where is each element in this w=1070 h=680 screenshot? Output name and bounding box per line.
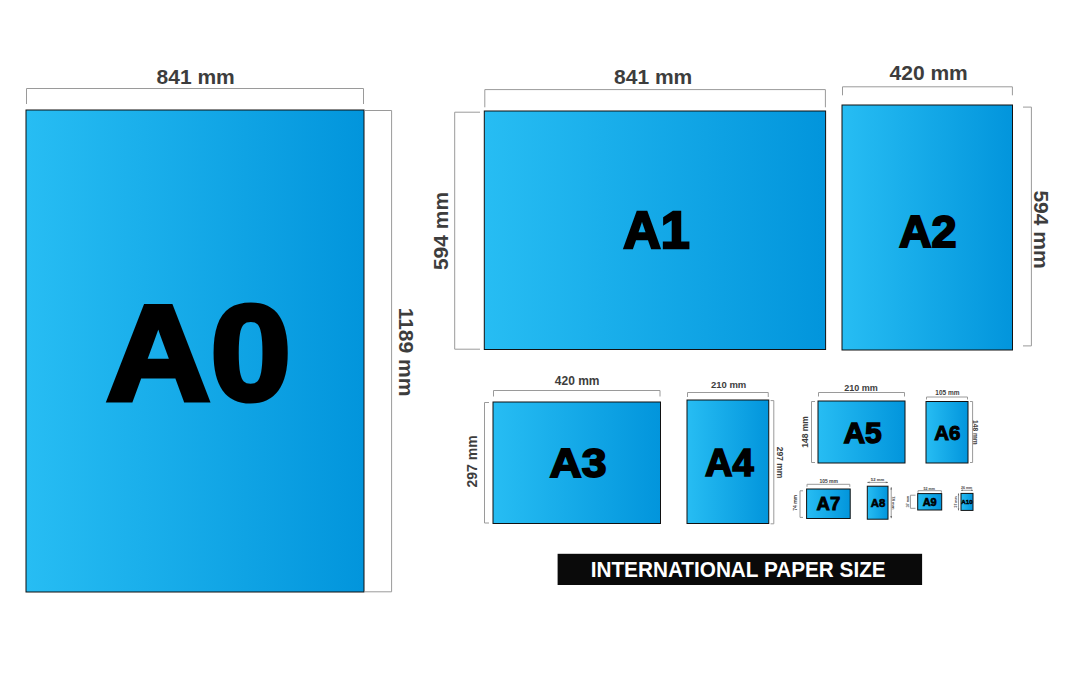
svg-text:A8: A8 xyxy=(871,497,886,509)
svg-text:105 mm: 105 mm xyxy=(819,478,838,484)
svg-text:37 mm: 37 mm xyxy=(954,496,958,507)
svg-text:420 mm: 420 mm xyxy=(555,374,600,388)
svg-text:594 mm: 594 mm xyxy=(1030,190,1053,268)
svg-text:594 mm: 594 mm xyxy=(429,192,452,270)
svg-text:297 mm: 297 mm xyxy=(464,435,480,487)
svg-text:A6: A6 xyxy=(934,421,960,444)
svg-text:52 mm: 52 mm xyxy=(871,477,885,482)
svg-text:148 mm: 148 mm xyxy=(800,416,810,448)
svg-text:INTERNATIONAL PAPER SIZE: INTERNATIONAL PAPER SIZE xyxy=(591,558,886,582)
svg-text:52 mm: 52 mm xyxy=(924,487,935,491)
svg-text:A5: A5 xyxy=(843,416,881,449)
svg-text:A3: A3 xyxy=(550,440,607,486)
svg-text:841 mm: 841 mm xyxy=(157,65,235,88)
svg-text:105 mm: 105 mm xyxy=(935,389,959,396)
svg-text:26 mm: 26 mm xyxy=(961,486,972,490)
svg-text:420 mm: 420 mm xyxy=(890,61,968,84)
svg-text:A10: A10 xyxy=(961,498,973,505)
svg-text:210 mm: 210 mm xyxy=(844,383,878,393)
svg-text:A1: A1 xyxy=(623,201,689,259)
svg-text:74 mm: 74 mm xyxy=(792,494,798,510)
svg-text:210 mm: 210 mm xyxy=(711,379,746,390)
svg-text:74 mm: 74 mm xyxy=(891,496,896,510)
svg-text:A4: A4 xyxy=(705,442,754,484)
svg-text:297 mm: 297 mm xyxy=(775,447,785,479)
svg-text:A9: A9 xyxy=(923,496,937,508)
svg-text:A2: A2 xyxy=(899,206,957,257)
svg-text:37 mm: 37 mm xyxy=(906,496,910,507)
svg-text:841 mm: 841 mm xyxy=(614,65,692,88)
svg-text:1189 mm: 1189 mm xyxy=(395,308,418,397)
svg-text:148 mm: 148 mm xyxy=(972,420,979,445)
svg-text:A0: A0 xyxy=(106,278,291,429)
svg-text:A7: A7 xyxy=(817,493,841,514)
